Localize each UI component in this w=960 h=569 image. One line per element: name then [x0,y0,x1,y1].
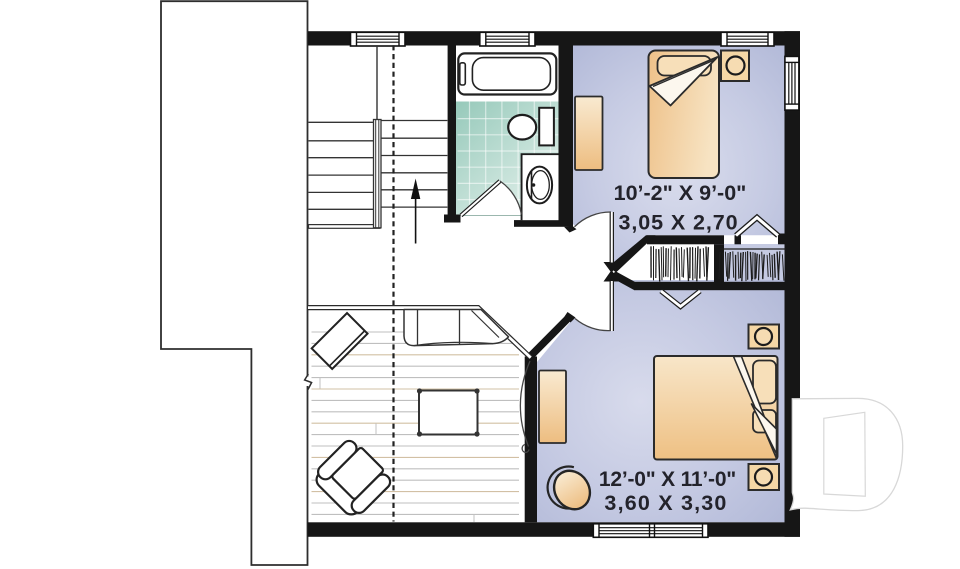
svg-text:3,05 X 2,70: 3,05 X 2,70 [619,211,739,235]
svg-text:10’-2" X 9’-0": 10’-2" X 9’-0" [614,181,747,205]
svg-text:3,60 X 3,30: 3,60 X 3,30 [604,491,727,515]
svg-text:12’-0" X 11’-0": 12’-0" X 11’-0" [599,468,736,491]
